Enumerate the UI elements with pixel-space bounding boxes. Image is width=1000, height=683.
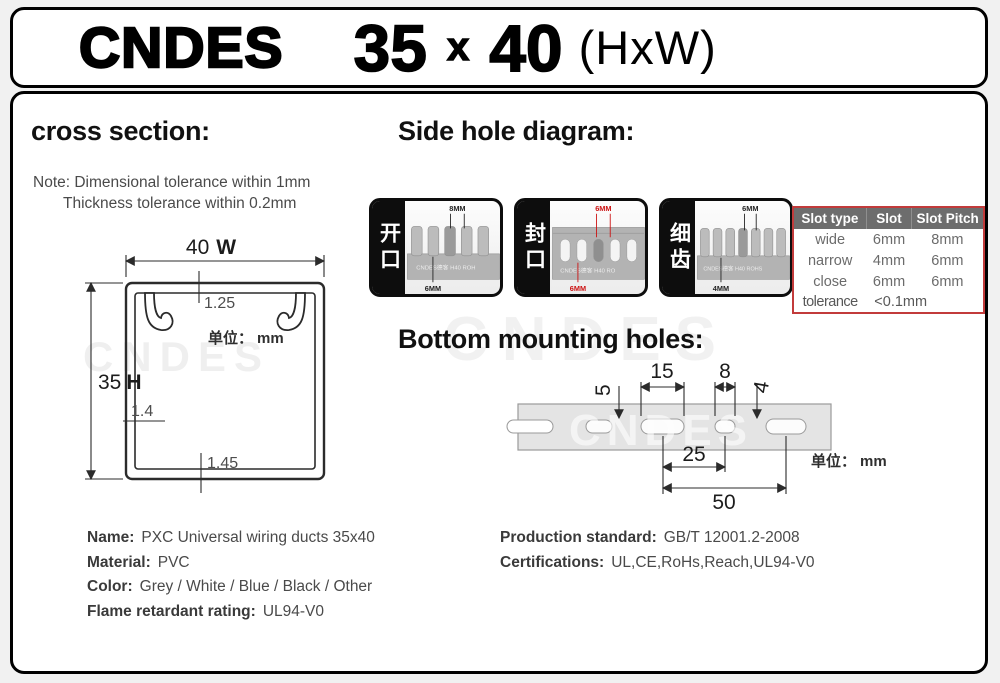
col-slot-pitch: Slot Pitch [912, 207, 984, 229]
duct-print-text: CNDES德客 H40 ROH [416, 264, 475, 272]
size-width: 40 [489, 10, 562, 86]
slot-width-dim: 4MM [713, 284, 729, 293]
left-retention-hook [145, 293, 173, 330]
slot-spec-table: Slot type Slot Slot Pitch wide 6mm 8mm n… [792, 206, 985, 314]
thumb-fine-teeth: 细齿 CNDES德客 H40 ROHS 6MM [659, 198, 793, 297]
note-line-1: Note: Dimensional tolerance within 1mm [33, 172, 310, 193]
duct-print-text: CNDES德客 H40 RO [560, 266, 615, 274]
main-panel: CNDES cross section: Note: Dimensional t… [10, 91, 988, 674]
dim-8-label: 8 [719, 360, 731, 383]
dim-25-label: 25 [682, 443, 705, 466]
width-dim-label: 40W [186, 236, 236, 259]
unit-note: 单位：mm [208, 329, 284, 347]
side-hole-thumbs: 开口 CNDES德客 H40 ROH 8MM 6MM [369, 198, 793, 297]
dim-5-label: 5 [592, 384, 615, 396]
col-slot-type: Slot type [793, 207, 866, 229]
dim-15-label: 15 [650, 360, 673, 383]
slot-pitch-dim: 6MM [595, 204, 611, 213]
table-header-row: Slot type Slot Slot Pitch [793, 207, 984, 229]
size-height: 35 [354, 10, 427, 86]
spec-certifications: Certifications:UL,CE,RoHs,Reach,UL94-V0 [500, 551, 815, 576]
cross-section-drawing: CNDES 40W 35H 1.25 1.4 [61, 231, 381, 516]
table-row: wide 6mm 8mm [793, 229, 984, 250]
product-specs-left: Name:PXC Universal wiring ducts 35x40 Ma… [87, 526, 375, 624]
dim-50-label: 50 [712, 491, 735, 514]
slot-width-dim: 6MM [570, 284, 586, 293]
brand-logo: CNDES [79, 15, 284, 81]
col-slot: Slot [866, 207, 912, 229]
side-thickness-label: 1.4 [131, 403, 153, 420]
thumb-closed-slot: 封口 CNDES德客 H40 RO 6MM [514, 198, 648, 297]
thumb-fine-photo: CNDES德客 H40 ROHS 6MM 4MM [695, 201, 790, 294]
edge-notch [507, 420, 553, 433]
bottom-holes-drawing: CNDES 15 8 5 4 25 50 [481, 360, 971, 515]
spec-sheet: CNDES 35 x 40 (HxW) CNDES cross section:… [0, 0, 1000, 683]
note-line-2: Thickness tolerance within 0.2mm [33, 193, 310, 214]
spec-production-standard: Production standard:GB/T 12001.2-2008 [500, 526, 815, 551]
dim-4-label: 4 [749, 379, 774, 395]
hxw-note: (HxW) [579, 20, 717, 75]
thumb-fine-label: 细齿 [662, 201, 695, 294]
table-row: narrow 4mm 6mm [793, 250, 984, 271]
spec-material: Material:PVC [87, 551, 375, 576]
bottom-thickness-label: 1.45 [207, 455, 238, 472]
mount-slot [766, 419, 806, 434]
slot-pitch-dim: 6MM [742, 204, 758, 213]
spec-color: Color:Grey / White / Blue / Black / Othe… [87, 575, 375, 600]
duct-print-text: CNDES德客 H40 ROHS [703, 265, 762, 273]
header-panel: CNDES 35 x 40 (HxW) [10, 7, 988, 88]
slot-width-dim: 6MM [425, 284, 441, 293]
bottom-holes-title: Bottom mounting holes: [398, 324, 703, 355]
tolerance-note: Note: Dimensional tolerance within 1mm T… [33, 172, 310, 214]
thumb-open-slot: 开口 CNDES德客 H40 ROH 8MM 6MM [369, 198, 503, 297]
product-specs-right: Production standard:GB/T 12001.2-2008 Ce… [500, 526, 815, 575]
thumb-open-photo: CNDES德客 H40 ROH 8MM 6MM [405, 201, 500, 294]
table-row: close 6mm 6mm [793, 271, 984, 292]
cross-section-title: cross section: [31, 116, 210, 147]
spec-name: Name:PXC Universal wiring ducts 35x40 [87, 526, 375, 551]
size-separator: x [447, 25, 469, 70]
right-retention-hook [277, 293, 305, 330]
table-tolerance-row: tolerance <0.1mm [793, 292, 984, 313]
unit-note: 单位：mm [811, 452, 887, 470]
thumb-closed-label: 封口 [517, 201, 550, 294]
thumb-open-label: 开口 [372, 201, 405, 294]
slot-pitch-dim: 8MM [449, 204, 465, 213]
side-hole-title: Side hole diagram: [398, 116, 634, 147]
spec-flame-rating: Flame retardant rating:UL94-V0 [87, 600, 375, 625]
top-thickness-label: 1.25 [204, 295, 235, 312]
thumb-closed-photo: CNDES德客 H40 RO 6MM 6MM [550, 201, 645, 294]
height-dim-label: 35H [98, 371, 142, 394]
